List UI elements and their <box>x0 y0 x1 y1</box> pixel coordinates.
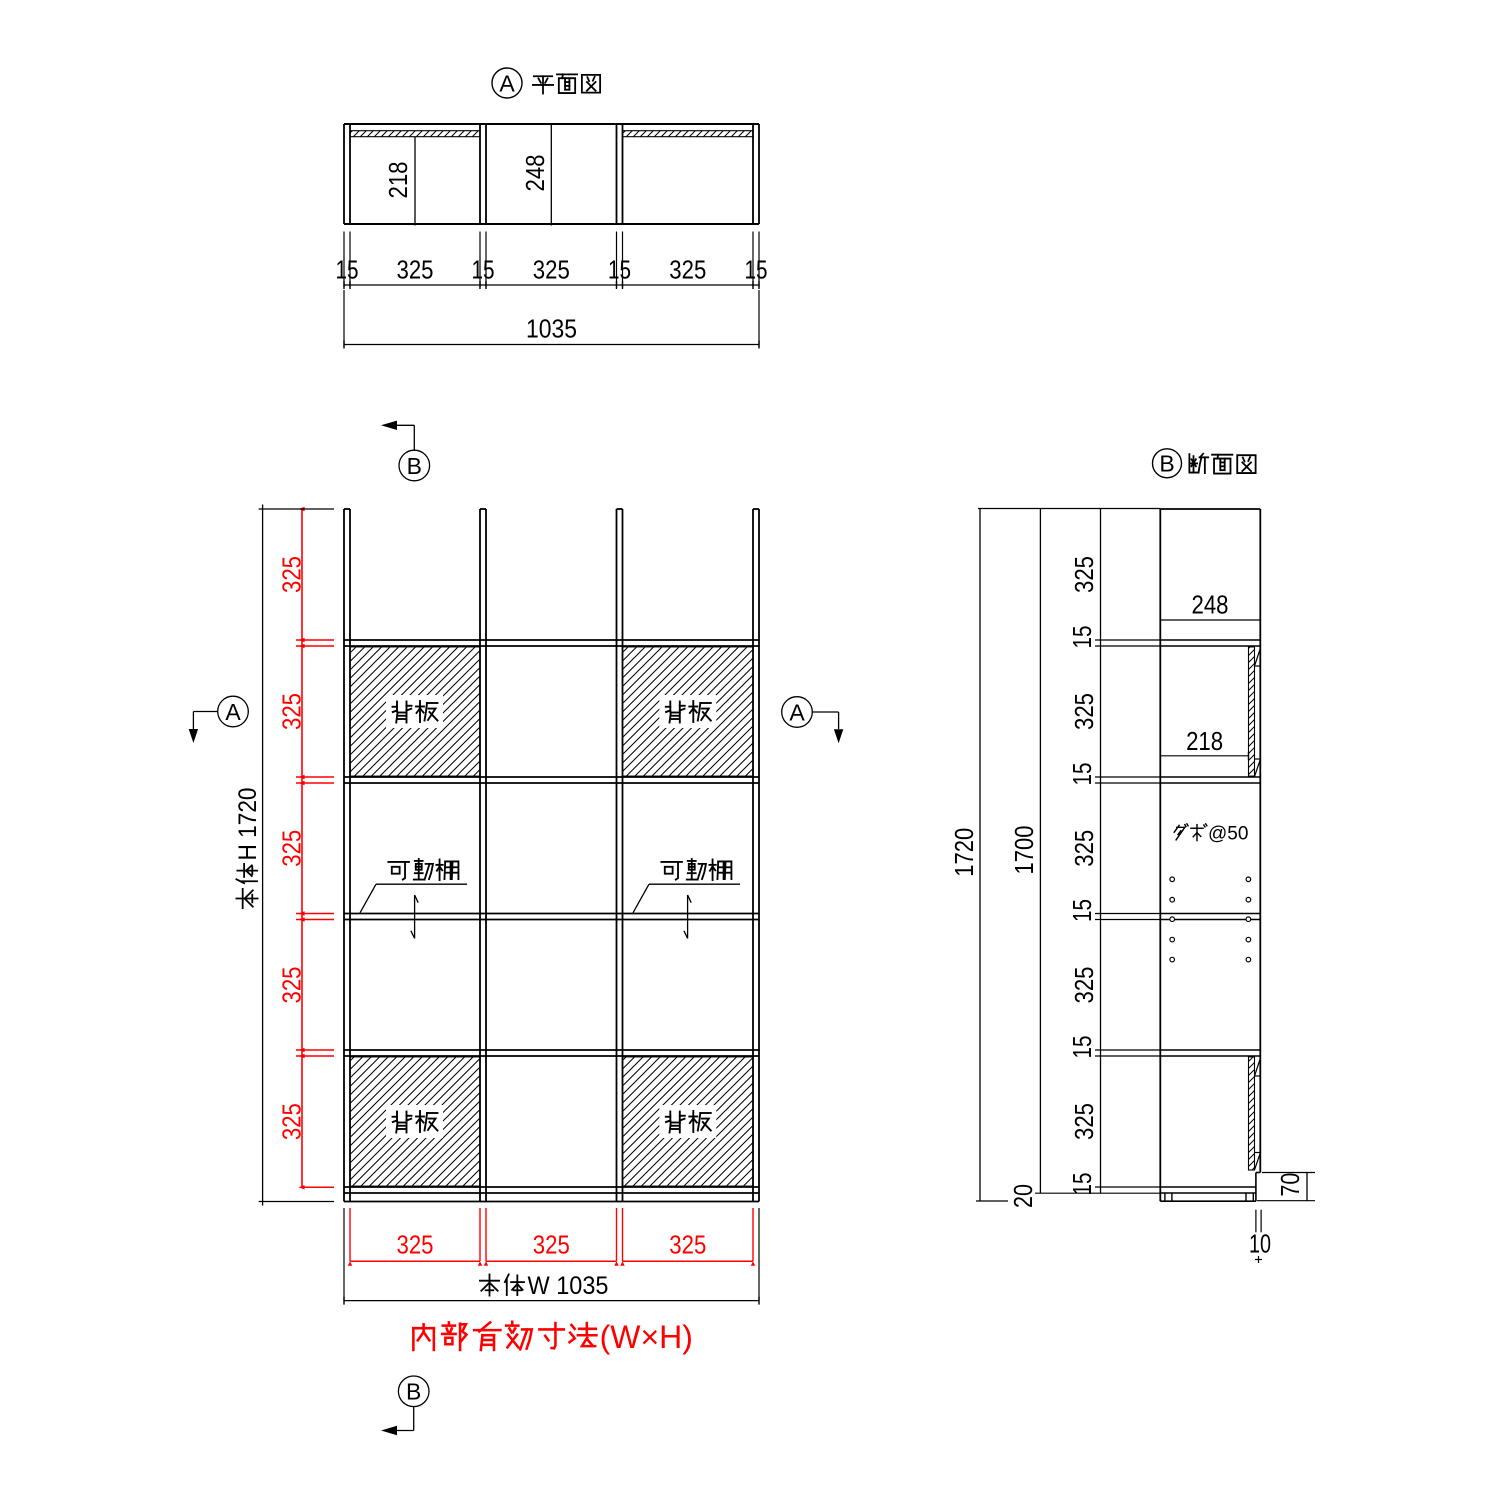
svg-text:325: 325 <box>1071 967 1099 1004</box>
svg-text:218: 218 <box>1186 728 1223 756</box>
svg-text:B: B <box>1159 451 1174 477</box>
svg-text:325: 325 <box>669 1231 706 1259</box>
svg-text:15: 15 <box>1069 1036 1097 1059</box>
svg-text:15: 15 <box>1069 899 1097 922</box>
svg-text:(W×H): (W×H) <box>600 1319 693 1355</box>
svg-text:15: 15 <box>745 257 768 285</box>
svg-text:218: 218 <box>385 162 413 199</box>
svg-text:A: A <box>499 70 515 96</box>
svg-text:H 1720: H 1720 <box>234 788 262 861</box>
svg-text:B: B <box>407 453 422 479</box>
svg-text:248: 248 <box>522 155 550 192</box>
svg-text:1720: 1720 <box>951 828 979 877</box>
svg-text:325: 325 <box>278 693 306 730</box>
svg-text:@50: @50 <box>1208 823 1248 844</box>
svg-text:15: 15 <box>1069 763 1097 786</box>
svg-text:325: 325 <box>669 257 706 285</box>
svg-text:15: 15 <box>336 257 359 285</box>
svg-text:325: 325 <box>278 967 306 1004</box>
svg-text:248: 248 <box>1192 592 1229 620</box>
svg-text:325: 325 <box>397 257 434 285</box>
svg-text:1700: 1700 <box>1011 826 1039 875</box>
svg-text:10: 10 <box>1249 1231 1271 1259</box>
svg-text:15: 15 <box>1069 626 1097 649</box>
svg-text:325: 325 <box>397 1231 434 1259</box>
svg-text:325: 325 <box>533 257 570 285</box>
svg-text:325: 325 <box>533 1231 570 1259</box>
svg-text:325: 325 <box>1071 693 1099 730</box>
svg-text:70: 70 <box>1277 1173 1305 1197</box>
svg-text:15: 15 <box>608 257 631 285</box>
svg-text:325: 325 <box>1071 556 1099 593</box>
svg-text:B: B <box>406 1379 421 1405</box>
svg-text:15: 15 <box>1069 1173 1097 1196</box>
svg-text:W 1035: W 1035 <box>528 1272 609 1300</box>
svg-text:325: 325 <box>278 1103 306 1140</box>
svg-text:325: 325 <box>278 556 306 593</box>
svg-text:1035: 1035 <box>526 316 577 344</box>
svg-text:20: 20 <box>1010 1184 1038 1208</box>
svg-text:325: 325 <box>278 830 306 867</box>
svg-text:325: 325 <box>1071 1103 1099 1140</box>
svg-text:A: A <box>225 699 241 725</box>
svg-text:15: 15 <box>472 257 495 285</box>
svg-text:A: A <box>789 699 805 725</box>
svg-text:325: 325 <box>1071 830 1099 867</box>
